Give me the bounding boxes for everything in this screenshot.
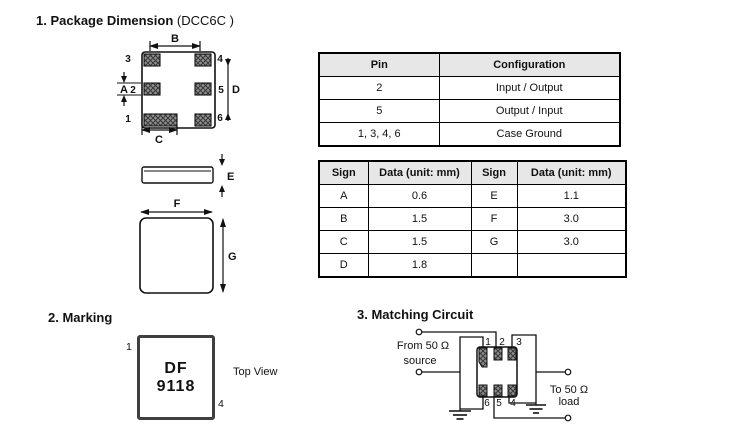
dim-c-label: C <box>155 134 163 146</box>
sign-cell: E <box>471 185 517 208</box>
dim-e-arrowhead-bottom <box>219 185 225 192</box>
dim-f-label: F <box>174 198 181 210</box>
pin1-label: 1 <box>125 114 131 125</box>
data-cell <box>517 254 626 278</box>
sign-cell: D <box>319 254 368 278</box>
load-label-line1: To 50 Ω <box>550 384 588 396</box>
sign-cell <box>471 254 517 278</box>
data-cell: 1.5 <box>368 231 471 254</box>
data-cell: 0.6 <box>368 185 471 208</box>
data-cell: 1.1 <box>517 185 626 208</box>
load-terminal-top <box>565 369 571 375</box>
marking-line2: 9118 <box>157 378 196 396</box>
dimension-data-table: Sign Data (unit: mm) Sign Data (unit: mm… <box>318 160 627 278</box>
table-row: 1, 3, 4, 6 Case Ground <box>319 123 620 147</box>
sign-cell: A <box>319 185 368 208</box>
sign-cell: G <box>471 231 517 254</box>
data-cell: 3.0 <box>517 208 626 231</box>
circuit-pad-pin3 <box>508 348 516 360</box>
pin-cell: 2 <box>319 77 439 100</box>
configuration-cell: Input / Output <box>439 77 620 100</box>
data-cell: 3.0 <box>517 231 626 254</box>
pin4-label: 4 <box>217 54 223 65</box>
circuit-pin6-label: 6 <box>484 398 490 409</box>
datasheet-page: 1. Package Dimension (DCC6C ) 3 2 1 4 5 … <box>0 0 740 433</box>
section1-heading-suffix: (DCC6C ) <box>177 13 234 28</box>
load-label-line2: load <box>559 396 580 408</box>
circuit-pad-pin1 <box>479 348 487 367</box>
circuit-pin5-label: 5 <box>496 398 502 409</box>
dim-e-label: E <box>227 171 234 183</box>
circuit-pad-pin4 <box>508 385 516 396</box>
circuit-pad-pin6 <box>479 385 487 396</box>
pin2-label: 2 <box>130 85 136 96</box>
sign-cell: C <box>319 231 368 254</box>
configuration-cell: Output / Input <box>439 100 620 123</box>
section2-heading: 2. Marking <box>48 310 112 325</box>
marking-line1: DF <box>164 360 187 378</box>
data-cell: 1.8 <box>368 254 471 278</box>
pin-table-header-row: Pin Configuration <box>319 53 620 77</box>
pin-table-header-configuration: Configuration <box>439 53 620 77</box>
source-label-line1: From 50 Ω <box>397 340 449 352</box>
marking-pin4-label: 4 <box>218 398 224 410</box>
circuit-pad-pin5 <box>494 385 502 396</box>
source-terminal-bottom <box>416 369 422 375</box>
dim-a-label: A <box>120 84 128 96</box>
table-row: A 0.6 E 1.1 <box>319 185 626 208</box>
table-row: B 1.5 F 3.0 <box>319 208 626 231</box>
pin-cell: 5 <box>319 100 439 123</box>
dim-e-arrowhead-top <box>219 159 225 166</box>
dim-table-header-sign1: Sign <box>319 161 368 185</box>
marking-box: DF 9118 <box>137 335 215 420</box>
dim-d-arrowhead-top <box>225 59 231 66</box>
pad-pin3 <box>144 54 160 66</box>
section1-heading: 1. Package Dimension (DCC6C ) <box>36 13 234 28</box>
circuit-pin3-label: 3 <box>516 337 522 348</box>
dim-table-header-data2: Data (unit: mm) <box>517 161 626 185</box>
pad-pin4 <box>195 54 211 66</box>
wire-pin6-to-rail <box>460 396 483 409</box>
wire-pin5-to-load <box>494 396 565 418</box>
marking-pin1-label: 1 <box>126 341 132 353</box>
pin3-label: 3 <box>125 54 131 65</box>
dim-table-header-data1: Data (unit: mm) <box>368 161 471 185</box>
pin-configuration-table: Pin Configuration 2 Input / Output 5 Out… <box>318 52 621 147</box>
sign-cell: F <box>471 208 517 231</box>
pad-pin2 <box>144 83 160 95</box>
pin-cell: 1, 3, 4, 6 <box>319 123 439 147</box>
dim-table-header-sign2: Sign <box>471 161 517 185</box>
sign-cell: B <box>319 208 368 231</box>
matching-circuit-drawing: 1 2 3 6 5 4 From 50 Ω source To 50 Ω loa… <box>378 326 613 432</box>
pin-table-header-pin: Pin <box>319 53 439 77</box>
ground-icon <box>449 411 471 419</box>
pad-pin5 <box>195 83 211 95</box>
section3-heading: 3. Matching Circuit <box>357 307 473 322</box>
table-row: 2 Input / Output <box>319 77 620 100</box>
table-row: C 1.5 G 3.0 <box>319 231 626 254</box>
dim-g-label: G <box>228 251 237 263</box>
dim-a-arrowhead-top <box>121 76 127 83</box>
pad-pin1 <box>144 114 177 126</box>
load-terminal-bottom <box>565 415 571 421</box>
dim-d-label: D <box>232 84 240 96</box>
pad-pin6 <box>195 114 211 126</box>
dim-d-arrowhead-bottom <box>225 113 231 120</box>
table-row: 5 Output / Input <box>319 100 620 123</box>
source-label-line2: source <box>403 355 436 367</box>
data-cell: 1.5 <box>368 208 471 231</box>
source-terminal-top <box>416 329 422 335</box>
circuit-pin4-label: 4 <box>510 398 516 409</box>
dim-b-label: B <box>171 33 179 45</box>
configuration-cell: Case Ground <box>439 123 620 147</box>
ground-icon <box>526 405 546 413</box>
dim-a-arrowhead-bottom <box>121 95 127 102</box>
package-dimension-drawing: 3 2 1 4 5 6 A B C D <box>98 28 266 300</box>
circuit-pin2-label: 2 <box>499 337 505 348</box>
section1-heading-bold: 1. Package Dimension <box>36 13 173 28</box>
dim-table-header-row: Sign Data (unit: mm) Sign Data (unit: mm… <box>319 161 626 185</box>
package-side-view-outline <box>142 167 213 183</box>
circuit-pad-pin2 <box>494 348 502 360</box>
pin5-label: 5 <box>218 85 224 96</box>
marking-caption: Top View <box>233 366 277 378</box>
table-row: D 1.8 <box>319 254 626 278</box>
package-bottom-view-outline <box>140 218 213 293</box>
circuit-pin1-label: 1 <box>485 337 491 348</box>
pin6-label: 6 <box>217 113 223 124</box>
